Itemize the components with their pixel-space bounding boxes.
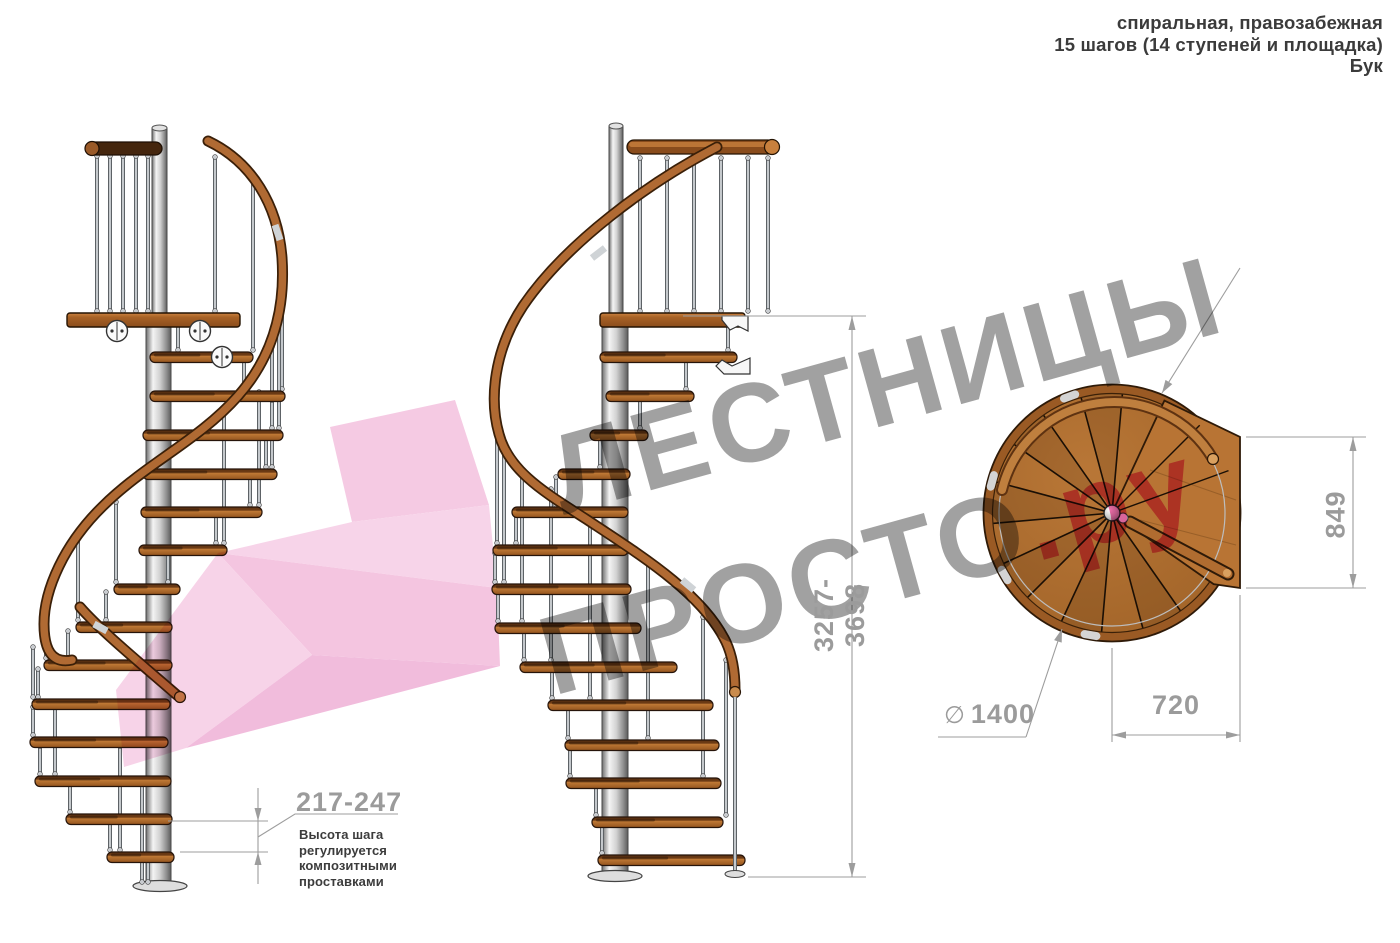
material: Бук [1054, 55, 1383, 77]
dimension-total-height: 3257-3698 [809, 550, 871, 680]
steps-count: 15 шагов (14 ступеней и площадка) [1054, 34, 1383, 56]
step-height-note: Высота шага регулируется композитными пр… [299, 827, 419, 889]
technical-drawing-page: ЛЕСТНИЦЫ ПРОСТО.ру спиральная, правозабе… [0, 0, 1400, 943]
dimension-landing-depth: 849 [1321, 471, 1352, 559]
dimension-diameter: ∅1400 [944, 699, 1035, 730]
stair-type: спиральная, правозабежная [1054, 12, 1383, 34]
title-block: спиральная, правозабежная 15 шагов (14 с… [1054, 12, 1383, 77]
side-view-front [30, 125, 285, 892]
dimension-landing-width: 720 [1136, 690, 1216, 721]
dimension-step-height: 217-247 [296, 787, 402, 818]
diameter-icon: ∅ [944, 702, 971, 729]
